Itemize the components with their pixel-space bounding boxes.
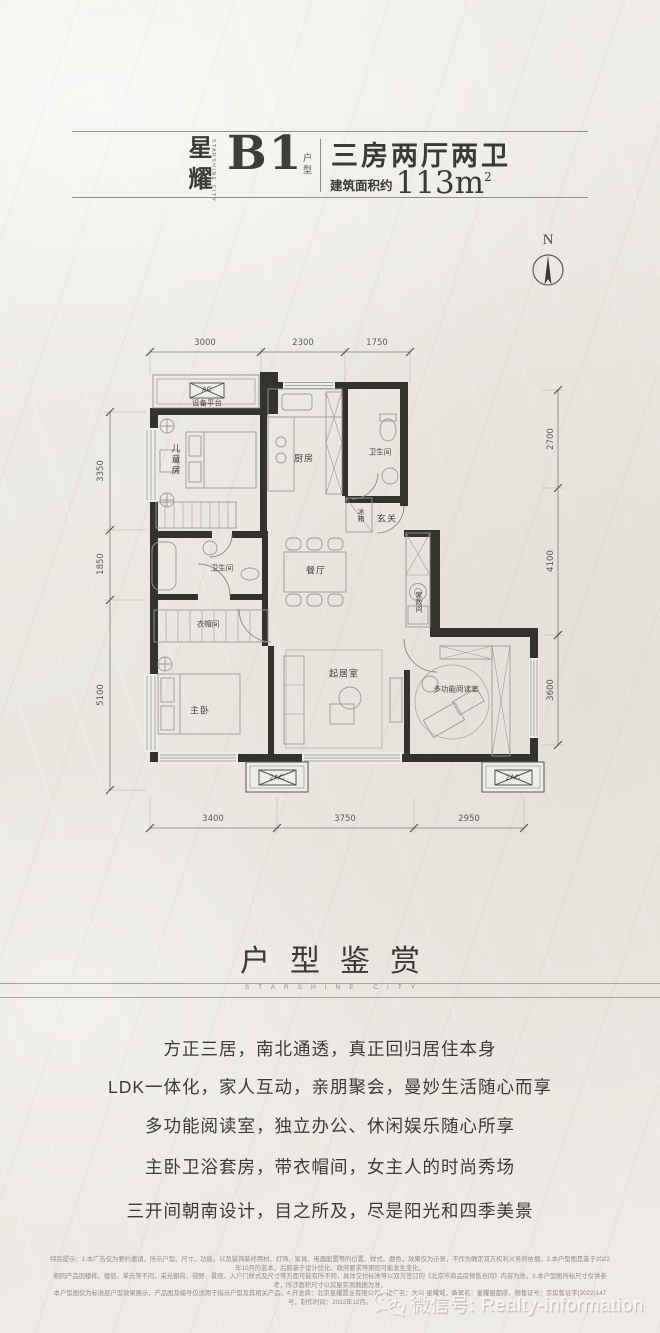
- room-label-living: 起居室: [329, 667, 359, 680]
- room-label-dining: 餐厅: [306, 564, 326, 577]
- floor-plan-canvas: [0, 330, 660, 850]
- header-rule-top: [72, 131, 588, 132]
- dim-left-2: 1850: [96, 553, 106, 575]
- compass-icon: [529, 249, 567, 289]
- room-label-equipment: 设备平台: [192, 398, 222, 409]
- feature-line-3: 多功能阅读室，独立办公、休闲娱乐随心所享: [0, 1113, 660, 1138]
- area-superscript: 2: [484, 170, 492, 198]
- area-value: 113m: [396, 168, 485, 198]
- unit-suffix: 户型: [301, 153, 314, 177]
- room-label-bath2: 卫生间: [211, 563, 234, 574]
- floor-plan: 设备平台 AC 儿童房 厨房 冰箱 卫生间 玄关 餐厅 卫生间 衣帽间 主卧 起…: [0, 330, 660, 850]
- floorplan-poster: 星耀 STARSHINE CITY B1 户型 三房两厅两卫 建筑面积约 113…: [0, 0, 660, 1333]
- area-line: 建筑面积约 113m 2: [330, 168, 492, 198]
- feature-line-4: 主卧卫浴套房，带衣帽间，女主人的时尚秀场: [0, 1154, 660, 1179]
- dim-left-1: 3350: [96, 460, 106, 482]
- room-label-ac: AC: [202, 387, 212, 394]
- feature-line-5: 三开间朝南设计，目之所及，尽是阳光和四季美景: [0, 1198, 660, 1223]
- header-divider: [320, 139, 321, 192]
- room-label-balcony-right: 2AC: [506, 773, 521, 782]
- dim-right-2: 4100: [546, 550, 556, 572]
- dim-right-3: 3600: [546, 679, 556, 701]
- north-label: N: [528, 232, 568, 249]
- room-label-foyer: 玄关: [377, 512, 397, 525]
- dim-top-2: 2300: [292, 338, 314, 348]
- showcase-rule-bottom: [0, 997, 660, 998]
- room-label-master: 主卧: [190, 704, 210, 717]
- dim-bottom-1: 3400: [202, 814, 224, 824]
- wechat-icon: [373, 1290, 405, 1317]
- room-label-housework: 家政间: [413, 592, 423, 613]
- wechat-id-text: 微信号: Realty-information: [411, 1290, 644, 1317]
- unit-code: B1: [227, 126, 303, 181]
- feature-line-2: LDK一体化，家人互动，亲朋聚会，曼妙生活随心而享: [0, 1074, 660, 1099]
- room-label-balcony-left: 2AC: [270, 773, 285, 782]
- dim-right-1: 2700: [546, 428, 556, 450]
- dim-top-3: 1750: [366, 338, 388, 348]
- wechat-watermark: 微信号: Realty-information: [373, 1290, 644, 1317]
- room-label-cloak: 衣帽间: [197, 619, 220, 630]
- north-compass: N: [528, 232, 568, 294]
- disclaimer-line-1: 特别提示：1.本广告仅为要约邀请，所示户型、尺寸、功能，以及装饰装修用材、灯饰、…: [48, 1256, 612, 1273]
- dim-top-1: 3000: [194, 338, 216, 348]
- feature-line-1: 方正三居，南北通透，真正回归居住本身: [0, 1036, 660, 1061]
- dim-bottom-2: 3750: [334, 814, 356, 824]
- brand-name-en: STARSHINE CITY: [210, 139, 216, 202]
- room-label-reading: 多功能阅读室: [434, 684, 479, 695]
- showcase-subtitle: STARSHINE CITY: [0, 984, 660, 991]
- room-label-kids: 儿童房: [170, 444, 183, 477]
- showcase-title: 户型鉴赏: [0, 936, 660, 980]
- room-label-bath1: 卫生间: [369, 447, 392, 458]
- disclaimer-line-2: 相同产品因楼栋、楼层、单元等不同，采光朝向、视野、景观、入户门样式及尺寸等方面可…: [48, 1273, 612, 1290]
- room-label-kitchen: 厨房: [294, 452, 314, 465]
- area-prefix: 建筑面积约: [330, 175, 393, 198]
- dim-left-3: 5100: [96, 684, 106, 706]
- room-label-fridge: 冰箱: [355, 508, 365, 522]
- dim-bottom-3: 2950: [458, 814, 480, 824]
